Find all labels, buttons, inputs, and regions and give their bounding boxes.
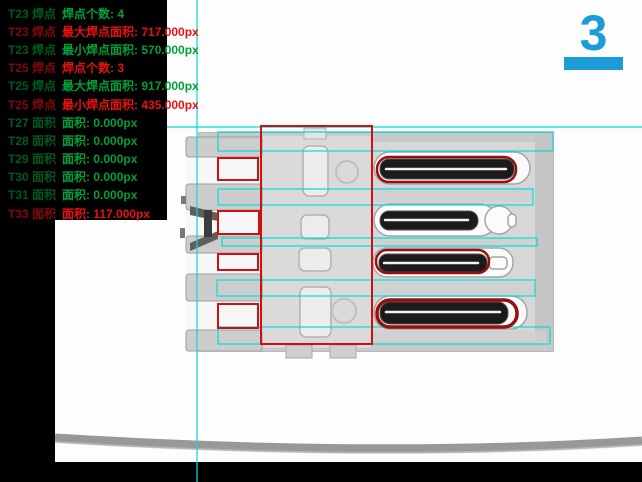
measurement-text: 焊点个数: 3 xyxy=(62,59,124,76)
result-row: T29 面积面积: 0.000px xyxy=(8,150,167,168)
measurement-text: 最大焊点面积: 717.000px xyxy=(62,23,199,40)
measurement-text: 最小焊点面积: 570.000px xyxy=(62,41,199,58)
tool-name: T23 焊点 xyxy=(8,23,56,40)
result-row: T31 面积面积: 0.000px xyxy=(8,186,167,204)
measurement-text: 最大焊点面积: 917.000px xyxy=(62,77,199,94)
measurement-text: 焊点个数: 4 xyxy=(62,5,124,22)
measurement-text: 面积: 0.000px xyxy=(62,114,137,131)
measurement-text: 面积: 0.000px xyxy=(62,168,137,185)
measurement-text: 面积: 117.000px xyxy=(62,205,150,222)
measurement-text: 面积: 0.000px xyxy=(62,132,137,149)
body-right-edge xyxy=(535,133,553,351)
tool-name: T25 焊点 xyxy=(8,77,56,94)
result-row: T27 面积面积: 0.000px xyxy=(8,113,167,131)
tool-name: T23 焊点 xyxy=(8,41,56,58)
result-row: T23 焊点最小焊点面积: 570.000px xyxy=(8,40,167,58)
station-counter: 3 xyxy=(563,12,624,70)
tool-name: T28 面积 xyxy=(8,132,56,149)
tool-name: T25 焊点 xyxy=(8,59,56,76)
counter-value: 3 xyxy=(563,12,624,54)
tool-name: T27 面积 xyxy=(8,114,56,131)
measurement-text: 最小焊点面积: 435.000px xyxy=(62,96,199,113)
result-row: T30 面积面积: 0.000px xyxy=(8,168,167,186)
vision-inspection-canvas: T23 焊点焊点个数: 4T23 焊点最大焊点面积: 717.000pxT23 … xyxy=(0,0,642,482)
tool-name: T23 焊点 xyxy=(8,5,56,22)
result-panel: T23 焊点焊点个数: 4T23 焊点最大焊点面积: 717.000pxT23 … xyxy=(0,0,167,220)
measurement-text: 面积: 0.000px xyxy=(62,150,137,167)
tool-name: T25 焊点 xyxy=(8,96,56,113)
result-row: T25 焊点焊点个数: 3 xyxy=(8,59,167,77)
result-row: T25 焊点最大焊点面积: 917.000px xyxy=(8,77,167,95)
result-row: T25 焊点最小焊点面积: 435.000px xyxy=(8,95,167,113)
result-row: T28 面积面积: 0.000px xyxy=(8,131,167,149)
result-row: T23 焊点最大焊点面积: 717.000px xyxy=(8,22,167,40)
measurement-text: 面积: 0.000px xyxy=(62,186,137,203)
result-row: T23 焊点焊点个数: 4 xyxy=(8,4,167,22)
tool-name: T33 面积 xyxy=(8,205,56,222)
housing-cutouts xyxy=(263,128,372,358)
result-row: T33 面积面积: 117.000px xyxy=(8,204,167,222)
tool-name: T31 面积 xyxy=(8,186,56,203)
tool-name: T29 面积 xyxy=(8,150,56,167)
tool-name: T30 面积 xyxy=(8,168,56,185)
